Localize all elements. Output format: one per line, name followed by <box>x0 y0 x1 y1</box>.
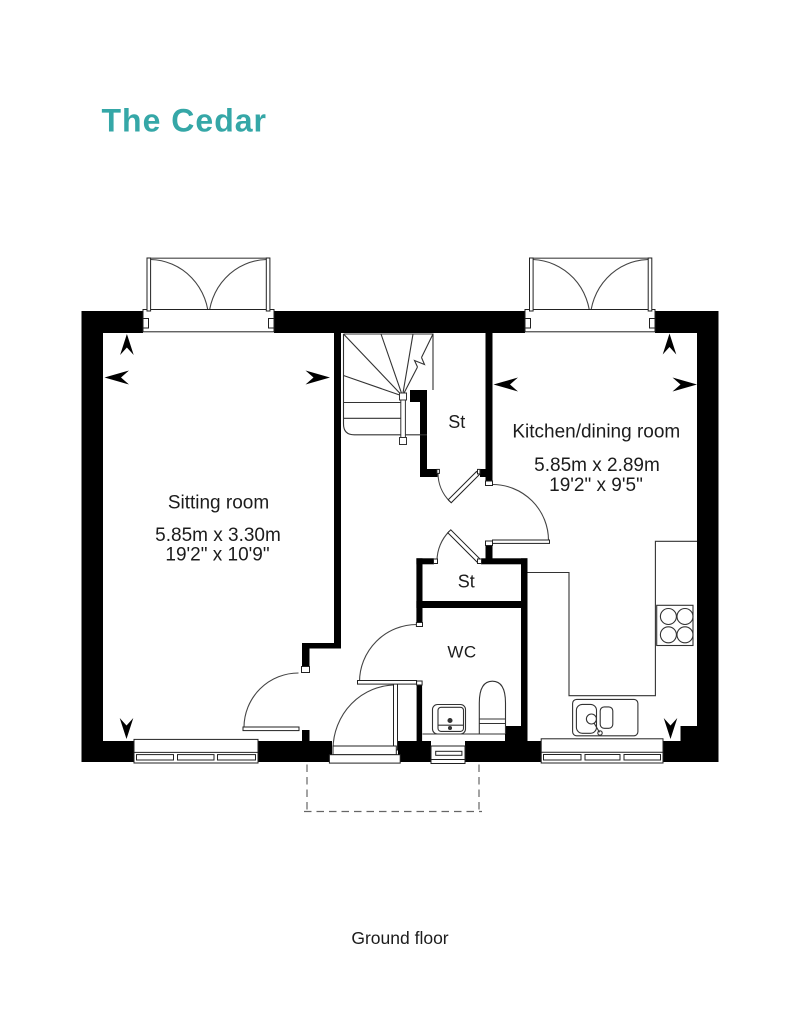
svg-text:Ground floor: Ground floor <box>351 928 448 948</box>
svg-text:WC: WC <box>447 643 476 662</box>
svg-text:St: St <box>458 572 475 592</box>
svg-text:19'2" x 10'9": 19'2" x 10'9" <box>165 545 269 566</box>
svg-text:5.85m x 3.30m: 5.85m x 3.30m <box>155 525 281 546</box>
svg-text:The Cedar: The Cedar <box>102 103 267 139</box>
svg-text:5.85m x 2.89m: 5.85m x 2.89m <box>534 455 660 476</box>
svg-text:19'2" x 9'5": 19'2" x 9'5" <box>549 475 643 496</box>
svg-text:Kitchen/dining room: Kitchen/dining room <box>512 422 680 443</box>
svg-text:St: St <box>448 412 465 432</box>
svg-text:Sitting room: Sitting room <box>168 493 269 514</box>
